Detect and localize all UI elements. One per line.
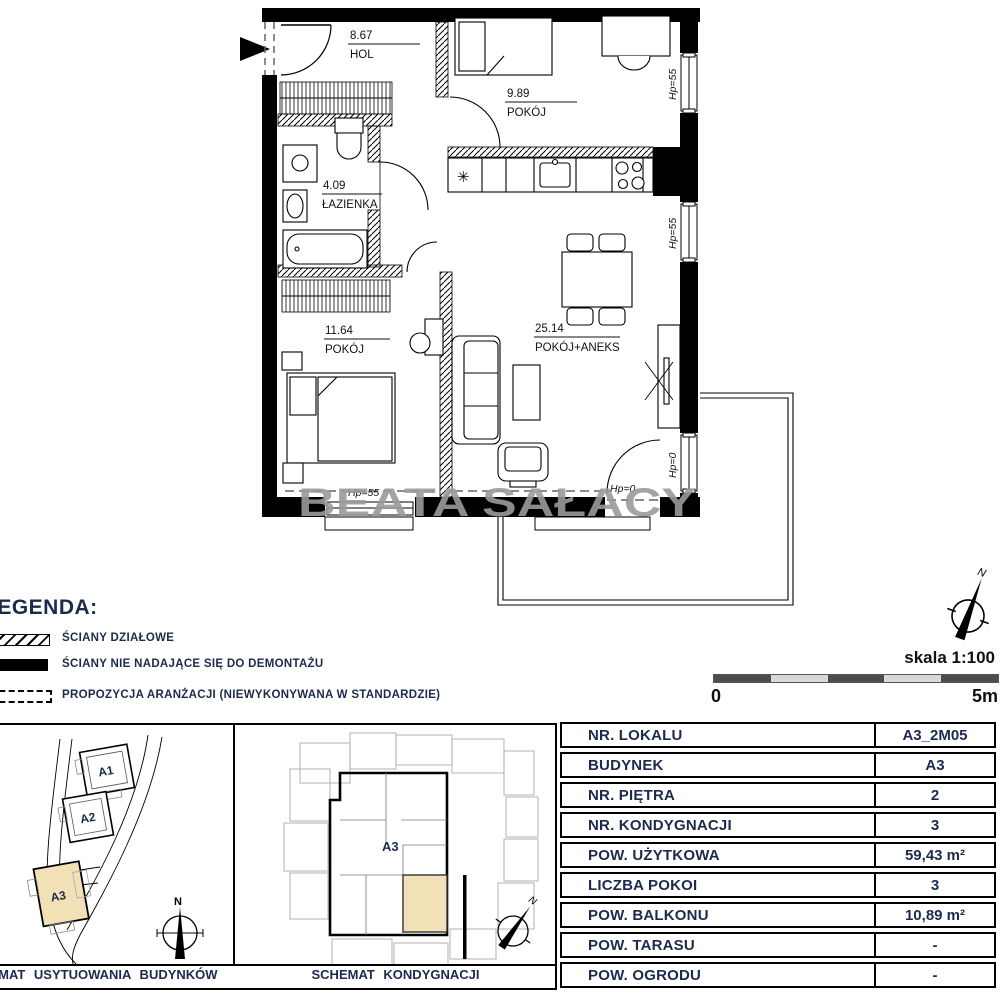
row-value: 59,43 m²: [876, 847, 994, 864]
floor-schematic: A3 N: [236, 725, 555, 964]
hp-label-right-top: Hp=55: [667, 69, 679, 100]
panel-divider: [233, 723, 235, 966]
row-label: POW. BALKONU: [562, 904, 876, 926]
building-a1-label: A1: [97, 763, 115, 780]
kitchen-counter: [448, 158, 653, 192]
room-pokoj2-name: POKÓJ: [325, 343, 364, 356]
floor-schematic-caption: SCHEMAT KONDYGNACJI: [236, 967, 555, 982]
dining-set: [562, 234, 632, 325]
page: ✳: [0, 0, 1000, 1000]
row-value: 2: [876, 787, 994, 804]
scale-label: skala 1:100: [904, 648, 995, 668]
room-hol-name: HOL: [350, 49, 374, 61]
room-pokoj1-name: POKÓJ: [507, 106, 546, 119]
schematic-compass-icon: N: [484, 885, 553, 959]
row-label: NR. KONDYGNACJI: [562, 814, 876, 836]
table-row: NR. KONDYGNACJI3: [560, 812, 996, 838]
scale-bar: [713, 674, 999, 683]
legend-title: LEGENDA:: [0, 596, 98, 620]
table-row: POW. UŻYTKOWA59,43 m²: [560, 842, 996, 868]
table-row: POW. BALKONU10,89 m²: [560, 902, 996, 928]
legend-swatch-hatched: [0, 634, 50, 646]
row-label: NR. PIĘTRA: [562, 784, 876, 806]
floor-plan: ✳: [240, 0, 800, 615]
table-row: POW. TARASU-: [560, 932, 996, 958]
scale-start-label: 0: [711, 686, 721, 707]
legend-item-structural-walls: ŚCIANY NIE NADAJĄCE SIĘ DO DEMONTAŻU: [62, 658, 323, 670]
legend-item-proposal: PROPOZYCJA ARANŻACJI (NIEWYKONYWANA W ST…: [62, 689, 440, 701]
building-a2-label: A2: [79, 810, 97, 827]
row-value: 3: [876, 877, 994, 894]
schematic-a3-label: A3: [382, 839, 399, 854]
building-a3-label: A3: [49, 888, 67, 905]
panel-bottom-border: [0, 988, 557, 990]
legend-swatch-solid: [0, 659, 48, 671]
watermark: BEATA SAŁACY: [298, 481, 696, 525]
site-compass-north: N: [174, 896, 182, 908]
hp-label-right-mid: Hp=55: [667, 218, 679, 249]
row-label: LICZBA POKOI: [562, 874, 876, 896]
table-row: NR. PIĘTRA2: [560, 782, 996, 808]
compass-north-label: N: [976, 566, 988, 580]
building-a2: A2: [57, 792, 114, 844]
room-aneks-name: POKÓJ+ANEKS: [535, 341, 620, 354]
schematic-thick-line: [463, 875, 467, 959]
legend-item-partition-walls: ŚCIANY DZIAŁOWE: [62, 632, 174, 644]
legend-swatch-dashed: [0, 690, 52, 703]
row-value: -: [876, 937, 994, 954]
row-label: BUDYNEK: [562, 754, 876, 776]
site-compass-icon: N: [157, 896, 203, 959]
row-value: 10,89 m²: [876, 907, 994, 924]
main-compass: N: [930, 566, 1000, 660]
table-row: LICZBA POKOI3: [560, 872, 996, 898]
bathroom-fixtures: [283, 118, 367, 268]
row-label: POW. UŻYTKOWA: [562, 844, 876, 866]
site-plan-caption: SCHEMAT USYTUOWANIA BUDYNKÓW: [0, 967, 218, 982]
room-lazienka-area: 4.09: [323, 180, 345, 192]
row-value: -: [876, 967, 994, 984]
room-hol-area: 8.67: [350, 30, 372, 42]
entrance-arrow-icon: [240, 22, 331, 75]
caption-separator: [0, 964, 557, 966]
schematic-highlighted-unit: [403, 875, 447, 932]
fridge-icon: ✳: [457, 169, 470, 186]
schematic-compass-north: N: [526, 895, 539, 909]
row-label: POW. OGRODU: [562, 964, 876, 986]
table-row: POW. OGRODU-: [560, 962, 996, 988]
room-pokoj2-area: 11.64: [325, 325, 354, 337]
table-row: BUDYNEKA3: [560, 752, 996, 778]
row-value: 3: [876, 817, 994, 834]
bedroom2-furniture: [282, 352, 395, 483]
room-aneks-area: 25.14: [535, 323, 564, 335]
scale-end-label: 5m: [972, 686, 998, 707]
room-lazienka-name: ŁAZIENKA: [322, 199, 378, 211]
bedroom1-furniture: [455, 16, 670, 75]
table-row: NR. LOKALUA3_2M05: [560, 722, 996, 748]
site-plan: A1 A2 A3 N: [0, 725, 233, 964]
row-value: A3_2M05: [876, 727, 994, 744]
hp-label-right-bottom: Hp=0: [667, 452, 679, 478]
unit-info-table: NR. LOKALUA3_2M05 BUDYNEKA3 NR. PIĘTRA2 …: [560, 722, 996, 988]
panel-right-border: [555, 723, 557, 990]
room-pokoj1-area: 9.89: [507, 88, 529, 100]
row-value: A3: [876, 757, 994, 774]
row-label: NR. LOKALU: [562, 724, 876, 746]
row-label: POW. TARASU: [562, 934, 876, 956]
